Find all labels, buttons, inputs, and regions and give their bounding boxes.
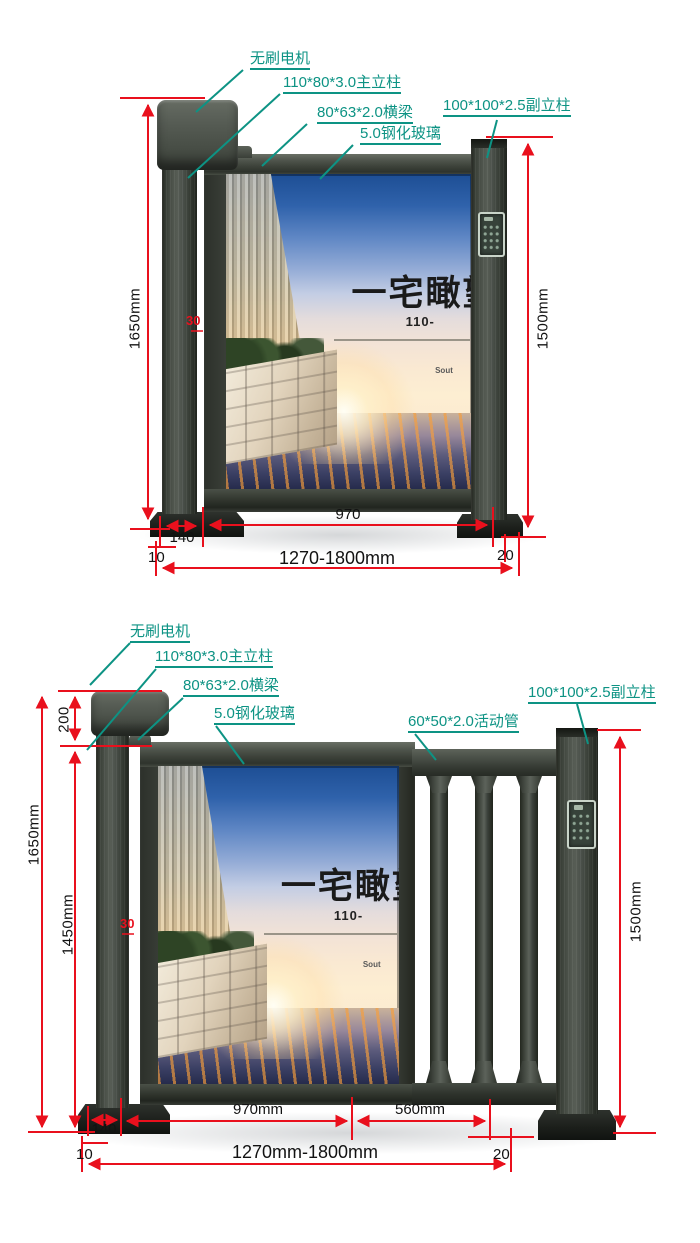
ad-poster: 一宅瞰望 110- Sout	[226, 174, 472, 489]
poster-brand: Sout	[435, 366, 453, 375]
dim-sub-post-height: 1500mm	[535, 269, 552, 369]
beam-end-step	[129, 735, 151, 746]
poster-divider	[264, 933, 399, 935]
callout-tube: 60*50*2.0活动管	[408, 713, 519, 733]
dim-post-width: 140	[74, 1121, 134, 1138]
dim-door-height: 1450mm	[60, 875, 77, 975]
railing-bar	[475, 776, 493, 1083]
dim-door-width: 970	[288, 506, 408, 523]
access-keypad	[478, 212, 505, 257]
sub-post-top-edge	[556, 728, 598, 737]
callout-glass: 5.0钢化玻璃	[214, 705, 295, 725]
callout-motor: 无刷电机	[130, 623, 190, 643]
access-keypad	[567, 800, 596, 849]
main-post	[162, 166, 197, 514]
dim-gap: 30	[186, 313, 200, 328]
sub-post	[471, 139, 507, 520]
poster-brand: Sout	[363, 960, 381, 969]
motor-cap	[157, 100, 238, 170]
poster-title: 一宅瞰望	[281, 858, 399, 909]
sub-post-foot	[538, 1110, 616, 1140]
dim-total-height: 1650mm	[26, 785, 43, 885]
callout-main-post: 110*80*3.0主立柱	[283, 74, 401, 94]
poster-title: 一宅瞰望	[351, 265, 472, 316]
dim-door-width: 970mm	[198, 1101, 318, 1118]
sub-post	[556, 728, 598, 1114]
dim-right-offset: 20	[493, 1146, 510, 1163]
dim-railing-width: 560mm	[360, 1101, 480, 1118]
gate-spec-sheet: 一宅瞰望 110- Sout 一宅瞰望 110- Sout	[0, 0, 700, 1243]
dim-gap: 30	[120, 916, 134, 931]
ad-poster: 一宅瞰望 110- Sout	[158, 766, 399, 1084]
dim-cap-height: 200	[56, 690, 73, 750]
railing-top-rail	[412, 749, 572, 776]
dim-post-width: 140	[152, 529, 212, 546]
top-beam	[140, 742, 415, 767]
callout-motor: 无刷电机	[250, 50, 310, 70]
dim-left-offset: 10	[76, 1146, 93, 1163]
sub-post-top-edge	[471, 139, 507, 148]
railing-bar	[520, 776, 538, 1083]
dim-total-width: 1270mm-1800mm	[175, 1142, 435, 1163]
railing-bar	[430, 776, 448, 1083]
motor-cap	[91, 691, 169, 736]
callout-glass: 5.0钢化玻璃	[360, 125, 441, 145]
callout-main-post: 110*80*3.0主立柱	[155, 648, 273, 668]
dim-total-height: 1650mm	[127, 269, 144, 369]
callout-beam: 80*63*2.0横梁	[317, 104, 413, 124]
dim-left-offset: 10	[148, 549, 165, 566]
poster-subtitle: 110-	[334, 908, 363, 923]
dim-sub-post-height: 1500mm	[628, 862, 645, 962]
dim-total-width: 1270-1800mm	[217, 548, 457, 569]
dim-right-offset: 20	[497, 547, 514, 564]
callout-sub-post: 100*100*2.5副立柱	[528, 684, 656, 704]
poster-subtitle: 110-	[406, 314, 435, 329]
poster-divider	[334, 339, 472, 341]
callout-beam: 80*63*2.0横梁	[183, 677, 279, 697]
terrace-image	[158, 943, 266, 1059]
callout-sub-post: 100*100*2.5副立柱	[443, 97, 571, 117]
